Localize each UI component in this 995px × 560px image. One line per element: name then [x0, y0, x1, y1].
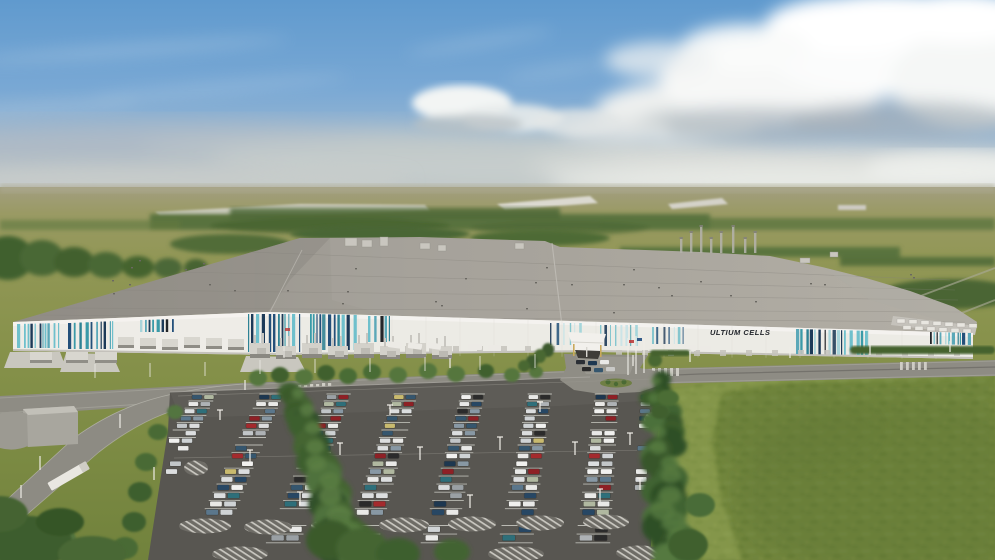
svg-text:ULTIUM CELLS: ULTIUM CELLS	[710, 328, 770, 337]
